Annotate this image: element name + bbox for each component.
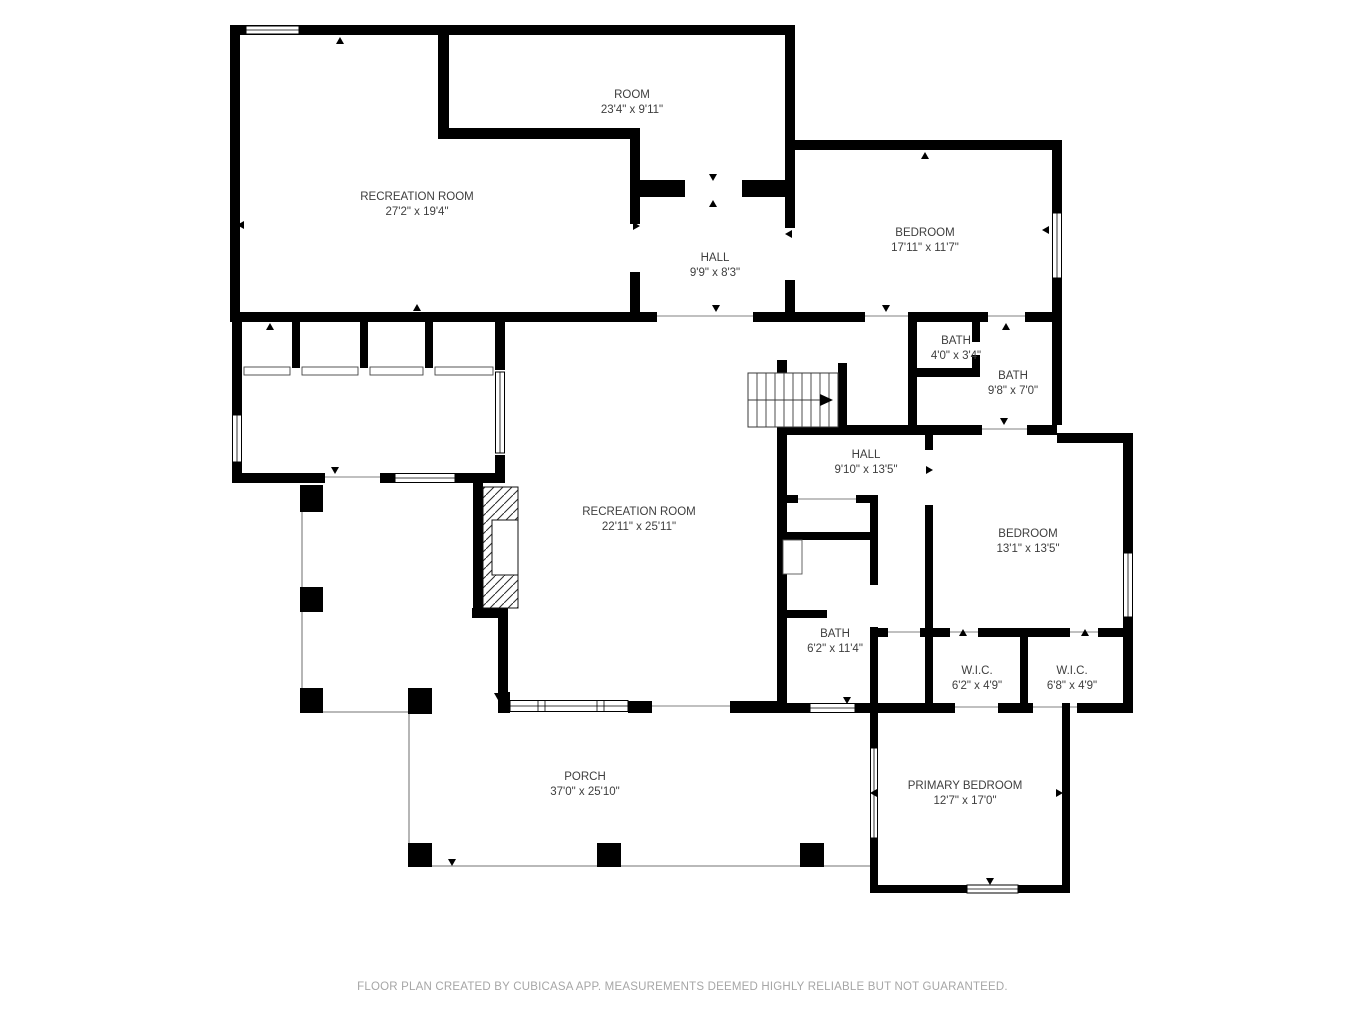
room-label-room: ROOM 23'4" x 9'11" — [601, 88, 663, 118]
room-dimensions: 4'0" x 3'4" — [931, 349, 981, 364]
room-name: W.I.C. — [952, 664, 1002, 679]
porch-pillars — [300, 485, 824, 867]
window — [395, 474, 455, 483]
room-dimensions: 27'2" x 19'4" — [360, 205, 474, 220]
porch-pillar — [408, 688, 432, 714]
window — [246, 26, 299, 34]
room-dimensions: 9'9" x 8'3" — [690, 266, 740, 281]
stairs-icon — [748, 373, 838, 427]
room-name: W.I.C. — [1047, 664, 1097, 679]
porch-pillar — [300, 587, 323, 612]
room-name: HALL — [834, 448, 897, 463]
window — [1124, 553, 1133, 617]
fireplace-icon — [483, 487, 518, 608]
room-name: PORCH — [550, 770, 619, 785]
room-label-hall-upper: HALL 9'9" x 8'3" — [690, 251, 740, 281]
room-label-recreation-room-main: RECREATION ROOM 22'11" x 25'11" — [582, 505, 696, 535]
porch-pillar — [408, 843, 432, 867]
room-label-bath-upper: BATH 9'8" x 7'0" — [988, 369, 1038, 399]
window — [1053, 213, 1062, 278]
porch-pillar — [800, 843, 824, 867]
porch-pillar — [300, 485, 323, 512]
window — [496, 372, 505, 453]
room-label-wic-right: W.I.C. 6'8" x 4'9" — [1047, 664, 1097, 694]
kitchen-cabinets — [244, 367, 802, 574]
room-dimensions: 22'11" x 25'11" — [582, 520, 696, 535]
porch-pillar — [597, 843, 621, 867]
walls — [230, 25, 1133, 893]
room-name: RECREATION ROOM — [360, 190, 474, 205]
room-dimensions: 23'4" x 9'11" — [601, 103, 663, 118]
room-dimensions: 9'10" x 13'5" — [834, 463, 897, 478]
room-name: BEDROOM — [996, 527, 1059, 542]
room-name: ROOM — [601, 88, 663, 103]
room-name: PRIMARY BEDROOM — [908, 779, 1023, 794]
closet-fixture — [783, 540, 802, 574]
room-label-wic-left: W.I.C. 6'2" x 4'9" — [952, 664, 1002, 694]
room-dimensions: 17'11" x 11'7" — [891, 241, 959, 256]
room-dimensions: 9'8" x 7'0" — [988, 384, 1038, 399]
room-dimensions: 6'8" x 4'9" — [1047, 679, 1097, 694]
floor-plan-page: ROOM 23'4" x 9'11" RECREATION ROOM 27'2"… — [0, 0, 1365, 1024]
window — [810, 704, 855, 713]
room-label-porch: PORCH 37'0" x 25'10" — [550, 770, 619, 800]
room-name: BEDROOM — [891, 226, 959, 241]
room-dimensions: 13'1" x 13'5" — [996, 542, 1059, 557]
room-label-bedroom-upper: BEDROOM 17'11" x 11'7" — [891, 226, 959, 256]
room-dimensions: 6'2" x 11'4" — [807, 642, 863, 657]
room-name: RECREATION ROOM — [582, 505, 696, 520]
room-label-primary-bedroom: PRIMARY BEDROOM 12'7" x 17'0" — [908, 779, 1023, 809]
room-label-hall-middle: HALL 9'10" x 13'5" — [834, 448, 897, 478]
room-dimensions: 37'0" x 25'10" — [550, 785, 619, 800]
window — [967, 885, 1018, 893]
window — [510, 701, 628, 712]
door-markers — [237, 37, 1089, 885]
room-label-bath-small: BATH 4'0" x 3'4" — [931, 334, 981, 364]
room-label-bedroom-middle: BEDROOM 13'1" x 13'5" — [996, 527, 1059, 557]
window — [233, 415, 242, 462]
room-name: BATH — [931, 334, 981, 349]
room-name: BATH — [988, 369, 1038, 384]
room-label-bath-middle: BATH 6'2" x 11'4" — [807, 627, 863, 657]
windows — [233, 26, 1133, 893]
room-label-recreation-room-upper: RECREATION ROOM 27'2" x 19'4" — [360, 190, 474, 220]
porch-pillar — [300, 688, 323, 713]
footer-disclaimer: FLOOR PLAN CREATED BY CUBICASA APP. MEAS… — [0, 981, 1365, 993]
room-name: HALL — [690, 251, 740, 266]
room-name: BATH — [807, 627, 863, 642]
room-dimensions: 6'2" x 4'9" — [952, 679, 1002, 694]
room-dimensions: 12'7" x 17'0" — [908, 794, 1023, 809]
